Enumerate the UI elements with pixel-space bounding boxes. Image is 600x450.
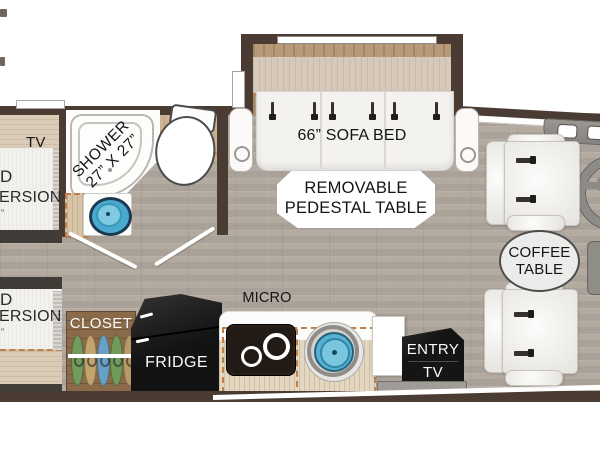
seatbelt-buckle-icon [530,195,536,203]
garment-icon [110,335,123,386]
cooktop-icon [226,324,296,376]
closet-rod [68,354,134,358]
bed-top-text-fragment: D [0,167,12,187]
fridge: FRIDGE [131,294,222,392]
entry-door [372,316,405,376]
bed-top-dim-fragment: ” [1,208,4,218]
cupholder-icon [460,147,476,163]
pedestal-table-label-line1: REMOVABLE [277,179,435,198]
seatbelt-buckle-icon [391,114,398,120]
entry-tv-label: TV [402,364,464,381]
fridge-handle [140,312,153,318]
counter-divider [296,329,298,387]
micro-label: MICRO [234,290,300,306]
pedestal-table-label-line2: PEDESTAL TABLE [277,199,435,218]
seatbelt-buckle-icon [528,310,534,318]
coffee-table-label-line1: COFFEE [508,244,570,261]
bed-bottom-dim-fragment: ” [1,327,4,337]
side-console [587,241,600,295]
coffee-table: COFFEE TABLE [499,230,580,292]
bed-top-foot-rail [0,230,62,243]
sofa-armrest-left [229,108,253,172]
driver-seat [504,141,580,226]
seatbelt-buckle-icon [433,114,440,120]
bed-bottom-footboard [0,349,62,387]
kitchen-sink-icon [304,322,364,382]
sofa-backrest [253,57,451,95]
sink-drain [332,350,337,355]
edge-mark [0,9,7,17]
fridge-label: FRIDGE [131,354,222,372]
bed-top-text-fragment: ERSION [0,189,62,207]
bed-bottom-text-fragment: ERSION [0,308,62,326]
seatbelt-icon [514,312,529,317]
garment-icon [71,335,84,386]
bedroom-tv-label: TV [26,134,56,151]
passenger-seat-armrest [505,370,563,386]
seatbelt-buckle-icon [269,114,276,120]
seatbelt-buckle-icon [329,114,336,120]
garment-icon [97,335,110,386]
seatbelt-buckle-icon [369,114,376,120]
pedestal-table-label: REMOVABLE PEDESTAL TABLE [277,171,435,228]
rv-floorplan: CLOSET FRIDGE ENTRY TV [0,0,600,450]
seatbelt-buckle-icon [311,114,318,120]
edge-mark [0,57,5,66]
closet: CLOSET [66,311,136,394]
sofa-armrest-right [455,108,479,172]
coffee-table-label-line2: TABLE [516,261,563,278]
burner-icon [263,333,290,360]
exterior-window-marker [16,100,65,109]
sofa-bed-label: 66” SOFA BED [267,127,437,145]
seatbelt-icon [516,158,531,163]
cabinet-shelf-line [408,361,458,362]
burner-icon [241,346,262,367]
entry-tv-cabinet: ENTRY TV [402,328,464,386]
cupholder-icon [234,146,250,162]
dash-vent [587,125,600,140]
passenger-seat [502,289,578,374]
entry-label: ENTRY [402,341,464,358]
closet-label: CLOSET [67,315,135,332]
seatbelt-buckle-icon [528,349,534,357]
seatbelt-icon [514,351,529,356]
driver-seat-armrest [507,215,565,231]
seatbelt-buckle-icon [530,156,536,164]
garment-icon [84,335,97,386]
slideout-exterior-trim [277,36,437,44]
bed-bottom-text-fragment: D [0,290,12,310]
bed-bottom-head-rail [0,277,62,289]
seatbelt-icon [516,197,531,202]
exterior-bracket [232,71,245,108]
